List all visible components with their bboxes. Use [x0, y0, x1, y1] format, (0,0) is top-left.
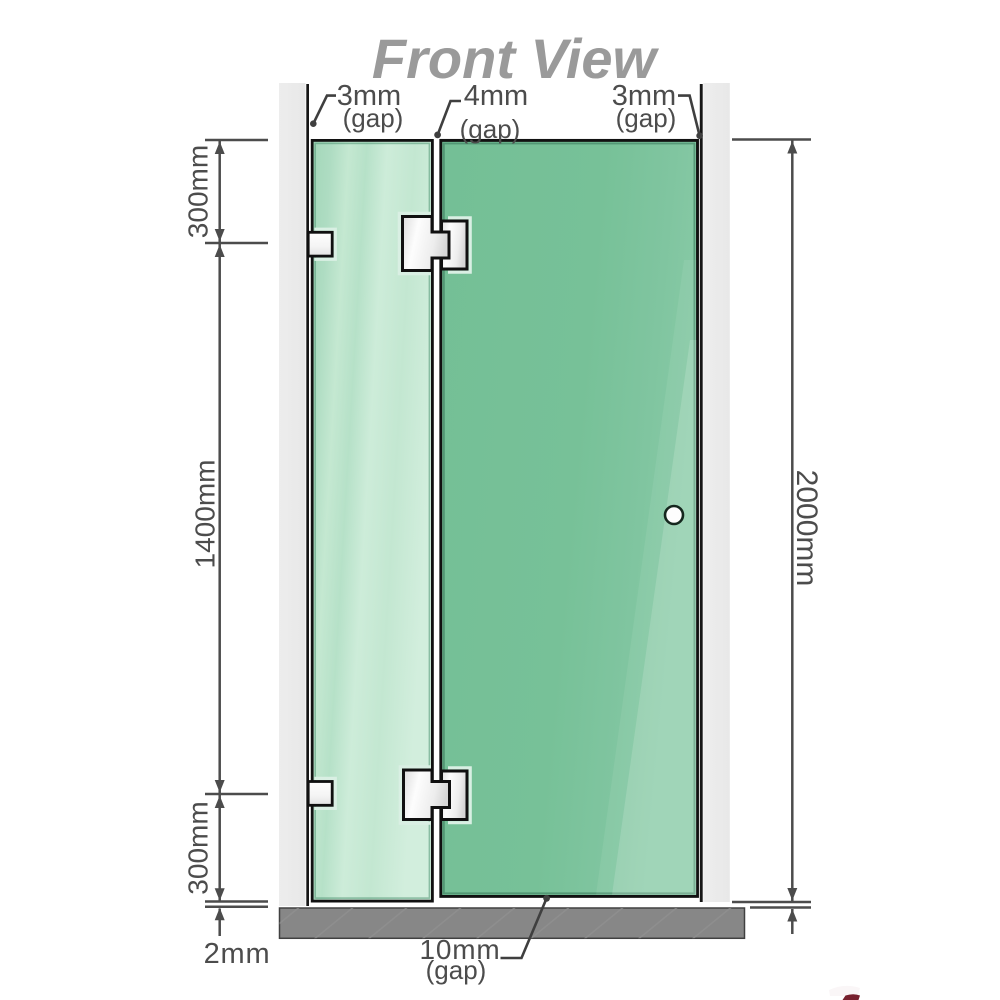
svg-text:(gap): (gap): [343, 103, 404, 133]
svg-text:(gap): (gap): [426, 955, 487, 985]
svg-text:(gap): (gap): [460, 114, 521, 144]
svg-text:300mm: 300mm: [182, 801, 213, 894]
svg-text:2000mm: 2000mm: [790, 470, 823, 587]
svg-text:1400mm: 1400mm: [189, 460, 220, 569]
svg-text:4mm: 4mm: [464, 80, 528, 112]
svg-text:2mm: 2mm: [204, 938, 271, 970]
svg-text:(gap): (gap): [616, 103, 677, 133]
svg-text:300mm: 300mm: [182, 145, 213, 238]
